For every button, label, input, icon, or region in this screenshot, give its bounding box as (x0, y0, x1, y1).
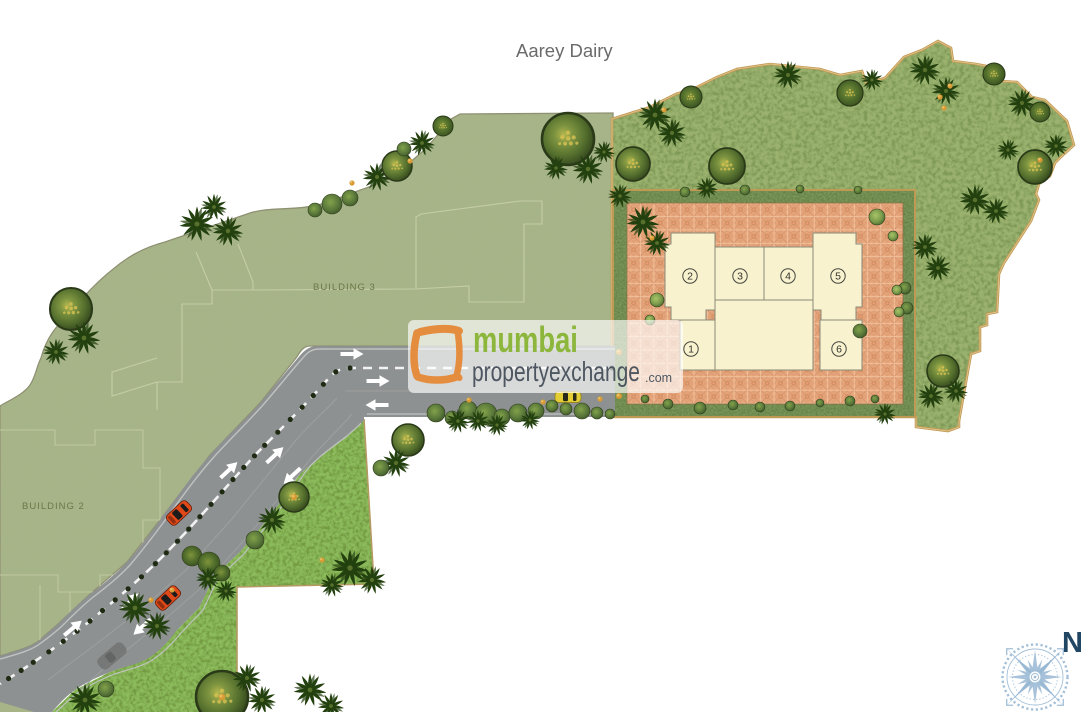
svg-text:6: 6 (836, 343, 842, 355)
svg-text:N: N (1062, 627, 1083, 659)
svg-text:Aarey Dairy: Aarey Dairy (516, 40, 613, 61)
svg-text:4: 4 (785, 270, 791, 282)
svg-text:5: 5 (835, 270, 841, 282)
svg-text:BUILDING 3: BUILDING 3 (313, 282, 376, 293)
svg-text:3: 3 (737, 270, 743, 282)
svg-text:2: 2 (687, 270, 693, 282)
svg-text:.com: .com (645, 371, 672, 385)
svg-text:1: 1 (688, 343, 694, 355)
svg-text:propertyexchange: propertyexchange (472, 357, 640, 388)
svg-text:BUILDING 2: BUILDING 2 (22, 501, 85, 512)
svg-text:mumbai: mumbai (473, 319, 578, 360)
